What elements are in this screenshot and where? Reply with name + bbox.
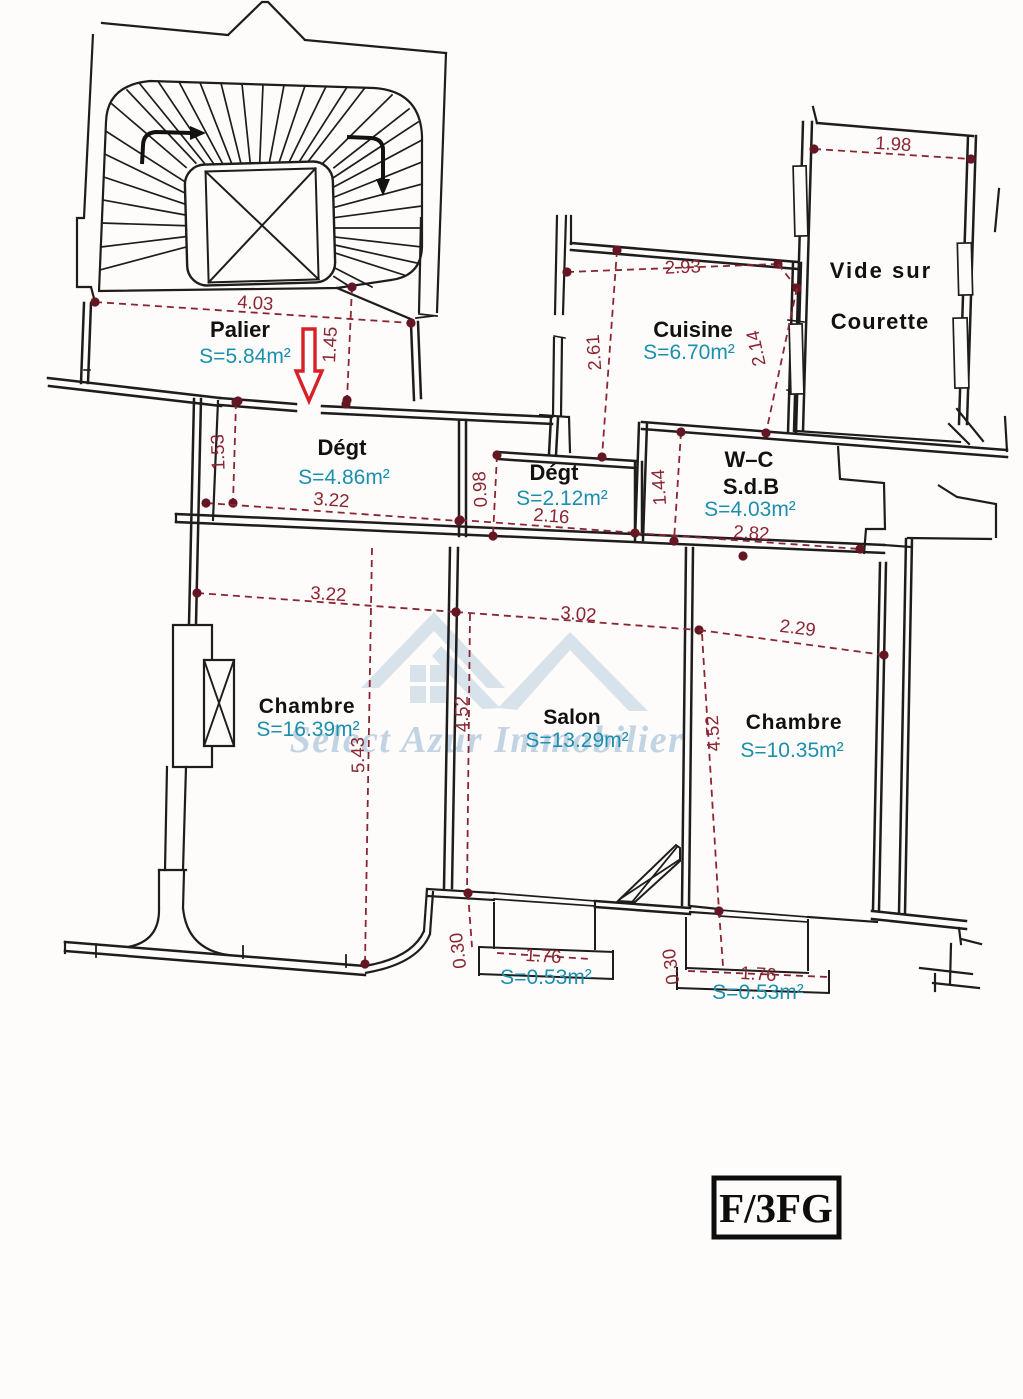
svg-text:3.22: 3.22 (310, 582, 347, 605)
svg-text:Vide sur: Vide sur (830, 258, 932, 283)
svg-text:2.61: 2.61 (582, 334, 605, 371)
svg-text:1.76: 1.76 (525, 944, 562, 967)
svg-text:S=0.53m²: S=0.53m² (500, 966, 592, 989)
svg-text:Palier: Palier (210, 317, 270, 342)
svg-text:S=16.39m²: S=16.39m² (256, 718, 359, 741)
svg-text:1.53: 1.53 (206, 434, 228, 471)
svg-text:3.02: 3.02 (560, 602, 597, 626)
svg-text:2.82: 2.82 (733, 521, 770, 544)
svg-text:Chambre: Chambre (746, 711, 843, 734)
svg-text:Cuisine: Cuisine (653, 317, 732, 342)
svg-text:Dégt: Dégt (530, 460, 580, 485)
svg-text:4.52: 4.52 (701, 715, 724, 752)
svg-text:0.30: 0.30 (658, 948, 683, 986)
svg-text:3.22: 3.22 (313, 488, 350, 512)
svg-text:2.29: 2.29 (779, 615, 817, 640)
svg-text:4.03: 4.03 (237, 291, 274, 314)
svg-text:F/3FG: F/3FG (719, 1185, 833, 1231)
svg-text:S=5.84m²: S=5.84m² (199, 345, 291, 368)
svg-text:S=4.86m²: S=4.86m² (298, 466, 390, 489)
svg-text:1.44: 1.44 (647, 469, 670, 506)
svg-text:S=4.03m²: S=4.03m² (704, 498, 796, 521)
svg-text:Chambre: Chambre (259, 695, 356, 718)
svg-text:2.93: 2.93 (664, 255, 701, 277)
svg-text:S.d.B: S.d.B (723, 474, 779, 499)
svg-text:W–C: W–C (725, 447, 774, 472)
svg-text:Dégt: Dégt (318, 435, 368, 460)
svg-text:S=6.70m²: S=6.70m² (643, 341, 735, 364)
svg-text:5.43: 5.43 (347, 737, 369, 773)
svg-text:S=0.53m²: S=0.53m² (712, 981, 804, 1004)
svg-text:0.98: 0.98 (468, 471, 491, 508)
svg-text:S=13.29m²: S=13.29m² (525, 729, 628, 752)
svg-text:4.52: 4.52 (451, 696, 473, 732)
svg-text:Salon: Salon (543, 706, 600, 729)
svg-text:0.30: 0.30 (445, 932, 470, 970)
svg-text:2.14: 2.14 (742, 329, 770, 369)
svg-text:1.45: 1.45 (318, 326, 341, 363)
svg-text:S=10.35m²: S=10.35m² (740, 739, 843, 762)
svg-text:1.98: 1.98 (875, 132, 912, 155)
svg-text:Courette: Courette (831, 309, 929, 334)
svg-text:S=2.12m²: S=2.12m² (516, 487, 608, 510)
